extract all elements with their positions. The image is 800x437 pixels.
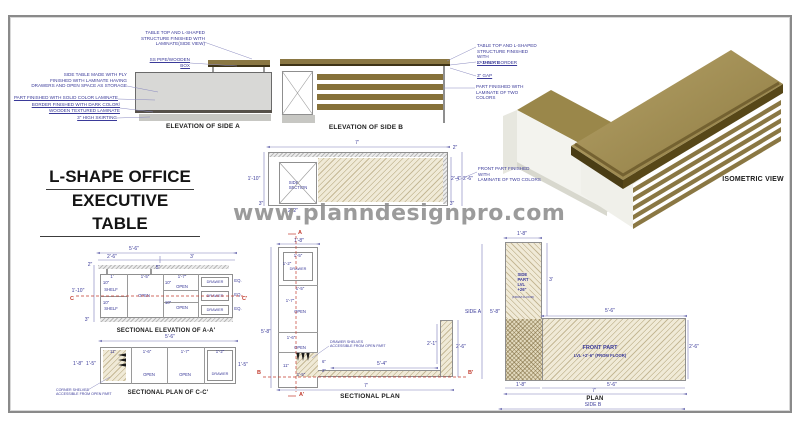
drawing-sheet: L-SHAPE OFFICE EXECUTIVE TABLE www.plann… xyxy=(0,0,800,437)
dim-3ft: 3' xyxy=(190,255,194,261)
elev-a-dark-border xyxy=(135,110,272,113)
iso-label: ISOMETRIC VIEW xyxy=(722,176,784,183)
dim-2in: 2" xyxy=(88,263,93,269)
cell-open: OPEN xyxy=(176,305,188,310)
title-line2: EXECUTIVE TABLE xyxy=(40,190,200,237)
dim-2ft6: 2'-6" xyxy=(463,177,473,183)
elev-a-body xyxy=(135,72,272,111)
cell-drawer: DRAWER xyxy=(207,294,224,298)
plan-front-lvl-text: LVL +2'-6" (FROM FLOOR) xyxy=(574,353,626,358)
plan-overlap-corner xyxy=(506,319,542,380)
elev-a-ann-pipe: SS PIPE/WOODEN BOX xyxy=(140,57,190,68)
watermark-text: www.planndesignpro.com xyxy=(233,201,565,226)
section-marker-c2: C' xyxy=(242,296,247,302)
cell-open: OPEN xyxy=(176,284,188,289)
plan-front-part-text: FRONT PART xyxy=(582,345,617,351)
elev-a-tabletop xyxy=(208,60,270,67)
elev-a-skirting xyxy=(139,114,271,121)
section-marker-c: C xyxy=(70,296,74,302)
dim-7ft: 7' xyxy=(355,141,359,147)
section-marker-a: A xyxy=(298,230,302,236)
section-marker-a2: A' xyxy=(299,392,304,398)
dim-3in: 3" xyxy=(85,318,90,324)
title-line1: L-SHAPE OFFICE xyxy=(46,166,194,190)
plan-side-part-text: SIDE PART LVL +26" xyxy=(516,272,529,292)
secel-bottom-band xyxy=(100,318,233,322)
dim-1ft7: 1'-7" xyxy=(178,275,187,280)
plan-side-b: SIDE B xyxy=(585,403,601,409)
dim-2ft4: 2'-4" xyxy=(451,177,461,183)
dim-5ft6: 5'-6" xyxy=(165,335,175,341)
cell-open: OPEN xyxy=(138,293,150,298)
elev-a-label: ELEVATION OF SIDE A xyxy=(166,123,240,130)
seccc-ann-corner: CORNER SHELVES ACCESSIBLE FROM OPEN PART xyxy=(56,388,114,397)
secel-tabletop-band xyxy=(98,265,229,269)
dim-1ft: 1' xyxy=(110,275,113,280)
side-section-top-band xyxy=(269,153,447,157)
side-section-ann-front: FRONT PART FINISHED WITH LAMINATE OF TWO… xyxy=(478,166,542,183)
cell-drawer: DRAWER xyxy=(207,308,224,312)
elev-a-ann-tabletop: TABLE TOP AND L-SHAPED STRUCTURE FINISHE… xyxy=(120,30,205,47)
plan-side-part-sub: (FROM FLOOR) xyxy=(512,295,534,299)
side-section-front-area xyxy=(318,158,443,202)
drawing-title: L-SHAPE OFFICE EXECUTIVE TABLE xyxy=(40,166,200,237)
dim-2ft6: 2'-6" xyxy=(107,255,117,261)
cell-shelf: SHELF xyxy=(104,287,118,292)
dim-2in: 2" xyxy=(453,146,458,152)
elev-b-skirting xyxy=(282,115,315,123)
plan-side-a: SIDE A xyxy=(465,310,481,316)
dim-1ft10: 1'-10" xyxy=(72,289,85,295)
secplan-ann-drawer: DRAWER SHELVES ACCESSIBLE FROM OPEN PART xyxy=(330,340,392,349)
elev-b-right-leg xyxy=(443,66,445,123)
elev-a-ann-solid: PART FINISHED WITH SOLID COLOR LAMINATE xyxy=(13,95,118,101)
seccc-label: SECTIONAL PLAN OF C-C' xyxy=(128,390,209,396)
secplan-front-band xyxy=(318,370,440,377)
elev-a-ann-border: BORDER FINISHED WITH DARK COLOR/ WOODEN … xyxy=(20,102,120,113)
elev-b-leg-box xyxy=(282,71,313,115)
elev-b-label: ELEVATION OF SIDE B xyxy=(329,124,403,131)
dim-1ft5: 1'-5" xyxy=(141,275,150,280)
dim-1ft10: 1'-10" xyxy=(248,177,261,183)
secplan-label: SECTIONAL PLAN xyxy=(340,393,400,400)
section-marker-b: B xyxy=(257,370,261,376)
side-section-label: SIDE SECTION xyxy=(289,180,308,190)
dim-5in: 5" xyxy=(156,266,161,272)
dim-5ft6: 5'-6" xyxy=(129,247,139,253)
secplan-right-leg xyxy=(440,320,453,377)
elev-b-tabletop xyxy=(280,59,450,66)
elev-a-ann-sidetable: SIDE TABLE MADE WITH PLY FINISHED WITH L… xyxy=(27,72,127,89)
cell-drawer: DRAWER xyxy=(207,280,224,284)
elev-a-ann-skirting: 3" HIGH SKIRTING xyxy=(77,115,117,121)
side-section-right-band xyxy=(443,157,447,204)
section-marker-b2: B' xyxy=(468,370,473,376)
cell-shelf: SHELF xyxy=(104,306,118,311)
elev-b-striped-front xyxy=(317,70,443,112)
